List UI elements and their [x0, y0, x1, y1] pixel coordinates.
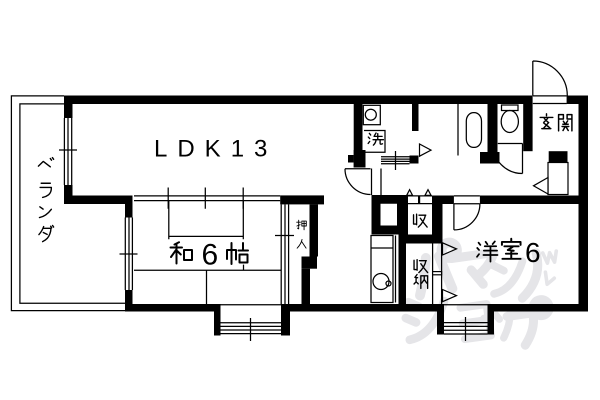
- svg-text:6: 6: [202, 239, 219, 272]
- svg-text:LDK13: LDK13: [154, 136, 277, 163]
